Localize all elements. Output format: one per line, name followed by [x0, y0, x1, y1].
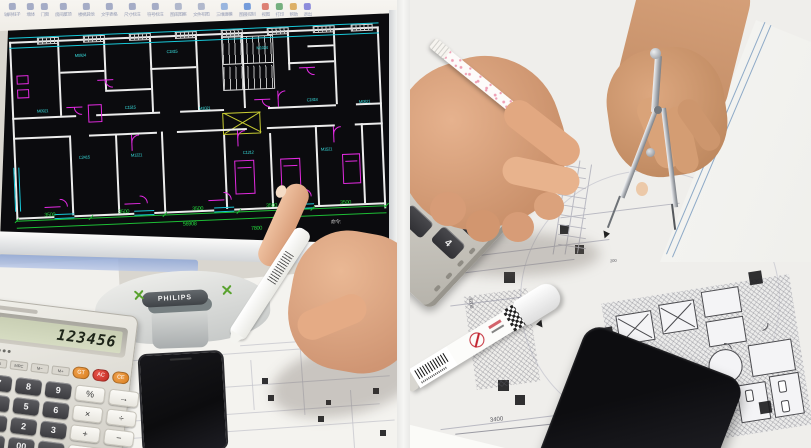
door-tag-label: M1221 — [131, 153, 143, 159]
photo-right-blueprint-desk: 9000 30700 3400 4200 200 014 — [410, 0, 811, 448]
door-arc — [277, 90, 294, 107]
window-symbol — [267, 27, 289, 35]
calculator-keys: 789%→456×÷123+−000·= — [0, 373, 140, 448]
column-marker — [380, 430, 386, 436]
toolbar-item-label: 楼梯其他 — [78, 11, 94, 18]
window-cyan — [214, 207, 234, 209]
wall-line — [361, 123, 366, 203]
corner-calc-key: 4 — [430, 225, 466, 260]
knuckle-3 — [502, 212, 534, 242]
dim-200: 200 — [610, 258, 617, 264]
calc-digit-key: 3 — [40, 420, 68, 439]
door-arc — [131, 134, 148, 151]
door-tag-label: C2415 — [79, 155, 90, 161]
calc-digit-key: 6 — [42, 401, 70, 420]
fixture-symbol — [17, 89, 29, 98]
toolbar-item-label: 符号标注 — [147, 11, 163, 18]
wall-line — [307, 44, 333, 47]
knuckle-2 — [466, 210, 500, 242]
calc-digit-key: 9 — [44, 381, 72, 400]
dim-total: 56908 — [183, 221, 197, 228]
dim-value: 3500 — [118, 209, 129, 215]
door-tag-label: M1521 — [321, 147, 333, 153]
toolbar-item-label: 图层控制 — [239, 11, 255, 18]
calc-edge-stud — [457, 260, 465, 268]
door-tag-label: C1212 — [243, 150, 254, 156]
fixture-symbol — [16, 75, 28, 84]
photo-divider — [397, 0, 410, 448]
wall-line — [60, 70, 104, 73]
toolbar-icon — [128, 3, 135, 10]
calc-digit-key: 5 — [12, 397, 40, 416]
toolbar-item-label: 尺寸标注 — [124, 11, 140, 18]
calc-func-key: M− — [30, 362, 49, 373]
window-symbol — [37, 37, 59, 45]
toolbar-item: 文字表格 — [100, 3, 119, 19]
wall-line — [149, 36, 154, 112]
toolbar-item: 退出 — [303, 3, 313, 18]
calculator-display-frame: 123456 — [0, 312, 128, 358]
right-fingernail — [636, 182, 648, 196]
wall-line — [12, 115, 76, 119]
smartphone-left — [137, 350, 228, 448]
photo-left-cad-monitor: 命令: M0921C1515M1021C1818M0821C2415M1221C… — [0, 0, 397, 448]
calc-op-key: % — [74, 384, 106, 404]
column-marker — [262, 378, 268, 384]
column-marker — [515, 395, 525, 405]
fixture-symbol — [342, 153, 361, 184]
wall-line — [269, 133, 274, 207]
toolbar-icon — [82, 3, 89, 10]
screenshot-root: 命令: M0921C1515M1021C1818M0821C2415M1221C… — [0, 0, 811, 448]
wall-line — [105, 88, 151, 92]
knuckle-1 — [430, 192, 466, 226]
toolbar-icon — [59, 3, 66, 10]
calc-edge-stud — [468, 247, 476, 255]
toolbar-icon — [27, 3, 34, 10]
toolbar-item-label: 退出 — [304, 11, 312, 18]
monitor-bezel-right — [389, 10, 397, 256]
toolbar-item: 门窗 — [40, 3, 50, 18]
toolbar-item: 帮助 — [289, 3, 299, 18]
window-symbol — [129, 33, 151, 41]
calc-digit-key: · — [37, 440, 65, 448]
door-tag-label: M1021 — [199, 106, 211, 112]
toolbar-item: 墙体 — [26, 3, 36, 18]
wall-line — [57, 40, 62, 116]
calc-func-key: M+ — [51, 365, 70, 376]
calculator-solar-dots — [0, 348, 11, 353]
fixture-symbol — [234, 160, 255, 195]
toolbar-icon — [41, 3, 48, 10]
window-cyan — [134, 210, 154, 212]
wall-line — [115, 133, 120, 213]
wall-line — [195, 34, 200, 110]
core-fixture — [778, 380, 788, 393]
core-column-marker — [748, 270, 763, 285]
wall-line — [355, 122, 383, 125]
dim-side: 7800 — [251, 225, 262, 231]
toolbar-icon — [243, 3, 250, 10]
compass-wheel — [646, 148, 655, 157]
toolbar-item: 图层控制 — [238, 3, 257, 19]
door-arc — [333, 126, 350, 143]
toolbar-icon — [290, 3, 297, 10]
toolbar-icon — [174, 3, 181, 10]
wall-line — [161, 132, 166, 212]
toolbar-icon — [262, 3, 269, 10]
calc-digit-key: 8 — [15, 377, 43, 396]
calc-digit-key: 2 — [10, 417, 38, 436]
window-symbol — [351, 24, 373, 32]
wall-line — [96, 112, 160, 116]
door-leaf — [208, 199, 224, 201]
calc-op-key: × — [72, 404, 104, 424]
toolbar-item-label: 帮助 — [290, 11, 298, 18]
command-line-text: 命令: — [331, 218, 341, 225]
core-room — [701, 286, 743, 318]
wall-line — [150, 66, 196, 70]
toolbar-icon — [151, 3, 158, 10]
section-bowtie — [603, 230, 610, 239]
calc-digit-key: 1 — [0, 413, 8, 432]
door-tag-label: C1515 — [125, 105, 136, 111]
calc-digit-key: 4 — [0, 393, 10, 412]
toolbar-item: 尺寸标注 — [123, 3, 142, 19]
window-symbol — [175, 31, 197, 39]
toolbar-icon — [105, 3, 112, 10]
toolbar-item: 视图 — [261, 3, 271, 18]
dim-value: 3500 — [340, 200, 351, 206]
door-tag-label: M1024 — [256, 46, 268, 52]
toolbar-item: 轴网柱子 — [3, 3, 22, 19]
elevator-room — [658, 299, 698, 334]
core-fixture — [745, 389, 755, 402]
calc-mode-key-ac: AC — [92, 368, 110, 382]
compass-head — [650, 48, 661, 59]
wall-line — [69, 135, 74, 215]
philips-logo-text: PHILIPS — [158, 294, 193, 303]
door-tag-label: M0821 — [359, 99, 371, 105]
dim-value: 3500 — [44, 212, 55, 218]
toolbar-icon — [8, 3, 15, 10]
wall-line — [13, 135, 69, 139]
toolbar-item-label: 文字表格 — [101, 11, 117, 18]
toolbar-icon — [304, 3, 311, 10]
calc-digit-key: 0 — [0, 433, 5, 448]
fixture-symbol — [88, 104, 103, 123]
toolbar-item-label: 轴网柱子 — [4, 11, 20, 18]
core-column-marker — [759, 401, 773, 415]
door-leaf — [45, 206, 61, 208]
door-tag-label: C1815 — [166, 49, 177, 55]
calc-edge-stud — [433, 284, 441, 292]
toolbar-item-label: 三维建模 — [216, 11, 232, 18]
calc-edge-stud — [445, 272, 453, 280]
monitor-stand-neck — [151, 307, 208, 349]
calc-func-key: MRC — [10, 360, 29, 371]
dim-value: 3500 — [266, 203, 277, 209]
door-leaf — [124, 203, 140, 205]
calc-mode-key-gt: GT — [72, 366, 90, 380]
wall-line — [267, 124, 335, 128]
toolbar-item-label: 房间屋顶 — [55, 11, 71, 18]
core-door-arc — [753, 316, 769, 332]
toolbar-item: 文件布图 — [192, 3, 211, 19]
toolbar-item-label: 打印 — [276, 11, 284, 18]
toolbar-item: 楼梯其他 — [77, 3, 96, 19]
dim-value: 3500 — [192, 206, 203, 212]
dim-4200: 4200 — [467, 297, 474, 309]
marker-red-logo — [467, 330, 488, 351]
compass-hinge — [654, 106, 662, 114]
calculator-display: 123456 — [0, 317, 123, 354]
calc-digit-key: 7 — [0, 373, 13, 392]
toolbar-icon — [276, 3, 283, 10]
core-fixture — [781, 400, 791, 413]
door-tag-label: M0924 — [75, 53, 87, 59]
toolbar-item: 图库图案 — [169, 3, 188, 19]
calc-digit-key: 00 — [7, 437, 35, 448]
stairs-symbol — [221, 35, 275, 91]
window-symbol — [313, 25, 335, 33]
toolbar-item-label: 图库图案 — [170, 11, 186, 18]
door-tag-label: C1818 — [307, 97, 318, 103]
toolbar-icon — [220, 3, 227, 10]
toolbar-item: 打印 — [275, 3, 285, 18]
plant-leaf-right — [222, 285, 232, 295]
window-symbol — [221, 29, 243, 37]
wall-line — [377, 26, 386, 208]
plant-leaf-left — [134, 290, 144, 300]
wall-line — [333, 28, 338, 104]
core-room — [705, 316, 747, 348]
wall-line — [89, 132, 157, 136]
calc-op-key: − — [103, 428, 135, 448]
wall-line — [315, 125, 320, 205]
toolbar-item: 符号标注 — [146, 3, 165, 19]
core-room — [748, 339, 796, 377]
section-bowtie — [535, 320, 542, 329]
window-cyan — [54, 213, 74, 215]
calc-op-key: ÷ — [105, 408, 137, 428]
door-tag-label: M0921 — [37, 109, 49, 115]
toolbar-item: 房间屋顶 — [54, 3, 73, 19]
toolbar-icon — [197, 3, 204, 10]
cad-drawing: 命令: M0921C1515M1021C1818M0821C2415M1221C… — [6, 2, 397, 250]
toolbar-item-label: 文件布图 — [193, 11, 209, 18]
toolbar-item-label: 墙体 — [27, 11, 35, 18]
calc-mode-key-ce: CE — [112, 371, 130, 385]
wall-line — [288, 60, 334, 64]
calc-op-key: → — [108, 389, 140, 409]
window-symbol — [83, 35, 105, 43]
knuckle-4 — [534, 192, 564, 220]
toolbar-item: 三维建模 — [215, 3, 234, 19]
calculator: 123456 MUMRCM−M+GTACCE 789%→456×÷123+−00… — [0, 298, 139, 448]
toolbar-item-label: 门窗 — [41, 11, 49, 18]
window-cyan-v — [18, 168, 21, 212]
toolbar-item-label: 视图 — [262, 11, 270, 18]
calc-op-key: + — [69, 424, 101, 444]
calc-func-key: MU — [0, 357, 8, 368]
